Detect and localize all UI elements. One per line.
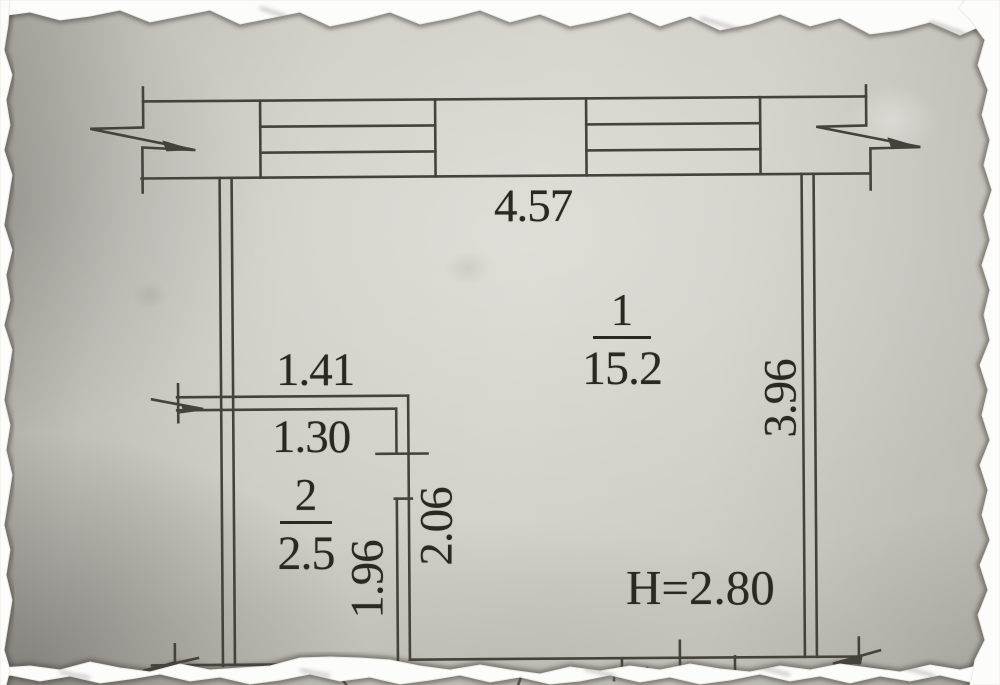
dimension-right-height: 3.96 bbox=[758, 351, 805, 447]
dimension-room2-opening-width: 1.30 bbox=[272, 414, 350, 461]
dimension-room2-inner-height: 1.96 bbox=[345, 532, 392, 628]
room-1-number: 1 bbox=[593, 288, 652, 339]
dimension-room2-top-width: 1.41 bbox=[276, 347, 354, 394]
dimension-top-width: 4.57 bbox=[494, 183, 572, 230]
room-2-number: 2 bbox=[280, 473, 333, 524]
room-2-area: 2.5 bbox=[261, 530, 351, 578]
room-1-label: 1 15.2 bbox=[577, 288, 667, 393]
room-2-label: 2 2.5 bbox=[261, 473, 351, 578]
room-1-area: 15.2 bbox=[577, 345, 667, 393]
ceiling-height-label: H=2.80 bbox=[626, 563, 775, 612]
plan-labels: 4.57 3.96 1 15.2 1.41 1.30 2 2.5 1.96 2.… bbox=[0, 0, 1000, 685]
photographed-floor-plan: 4.57 3.96 1 15.2 1.41 1.30 2 2.5 1.96 2.… bbox=[0, 0, 1000, 685]
dimension-partition-length: 2.06 bbox=[414, 479, 461, 575]
